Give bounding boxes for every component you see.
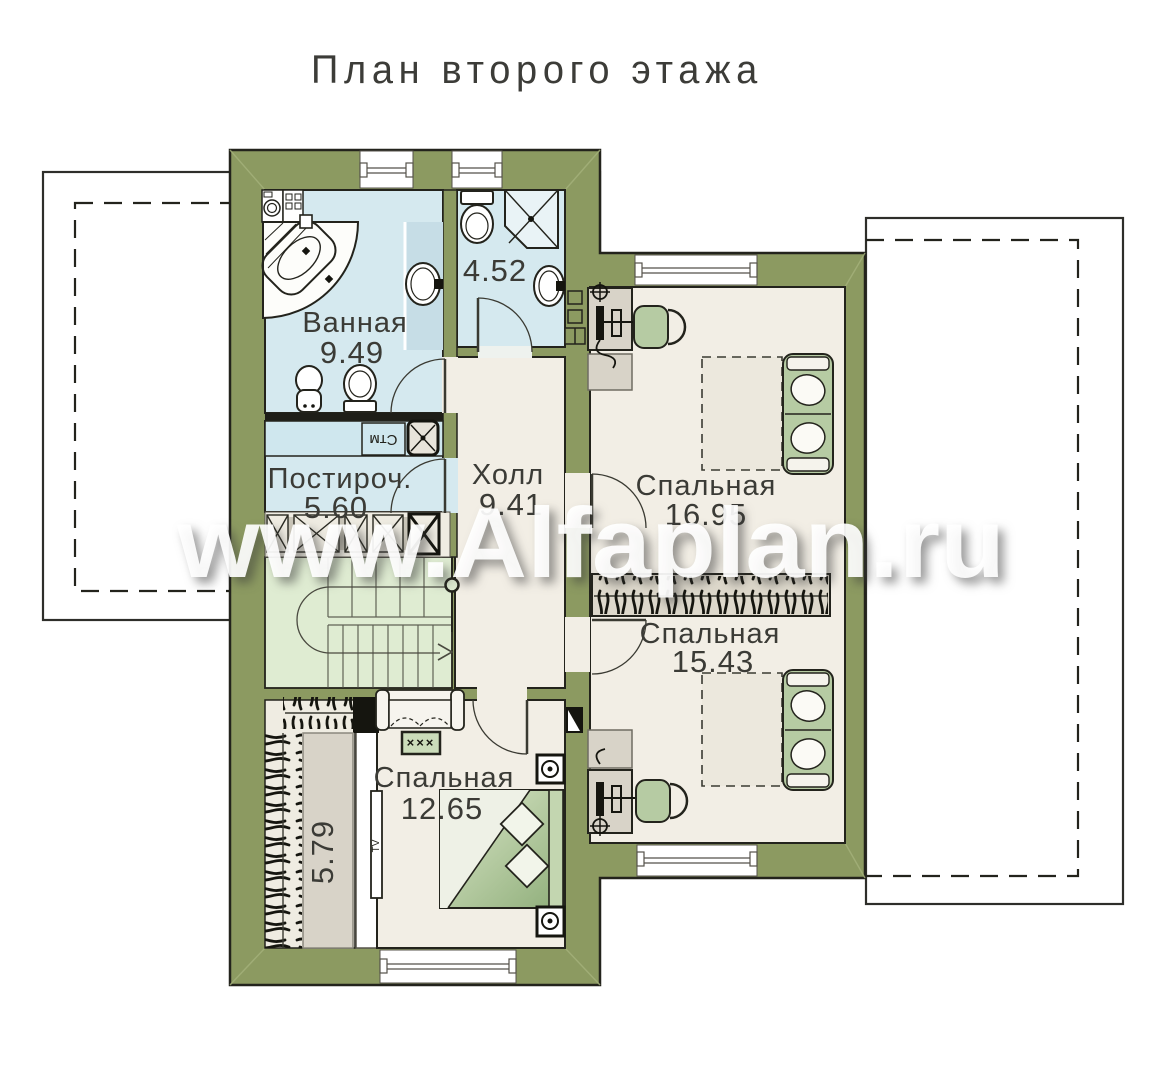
bedroom-bottom-door-opening bbox=[477, 687, 527, 701]
chimney-icon bbox=[566, 707, 583, 733]
watermark: www.Alfaplan.ru bbox=[176, 487, 1005, 598]
room-area: 15.43 bbox=[672, 644, 755, 679]
wc-door-opening bbox=[478, 346, 532, 358]
desk-icon bbox=[588, 770, 632, 833]
sofa-icon bbox=[376, 690, 464, 730]
page-title: План второго этажа bbox=[311, 48, 763, 92]
window bbox=[452, 151, 502, 188]
window bbox=[635, 255, 757, 285]
tv-label: TV bbox=[371, 839, 382, 852]
shower-icon bbox=[505, 190, 558, 248]
speaker-icon bbox=[537, 755, 564, 783]
tv-icon: TV bbox=[371, 791, 382, 898]
laundry-fixtures: Стм bbox=[265, 421, 443, 456]
room-label: Спальная bbox=[374, 762, 515, 794]
speaker-box-icon: ××× bbox=[402, 732, 440, 754]
nightstand-icon bbox=[588, 354, 632, 390]
room-area: 12.65 bbox=[401, 791, 484, 826]
speaker-label: ××× bbox=[407, 735, 436, 750]
floor-plan-drawing: План второго этажа bbox=[0, 0, 1165, 1080]
room-area: 5.79 bbox=[305, 820, 340, 884]
room-area: 4.52 bbox=[463, 253, 527, 288]
room-area: 9.49 bbox=[320, 335, 384, 370]
toilet-icon bbox=[344, 365, 376, 412]
sink-icon bbox=[534, 266, 565, 306]
bidet-icon bbox=[296, 366, 322, 412]
bedroom-right-door-opening bbox=[565, 617, 590, 672]
window bbox=[637, 845, 757, 876]
window bbox=[360, 151, 413, 188]
toilet-icon bbox=[461, 191, 493, 243]
window bbox=[380, 950, 516, 983]
nightstand-icon bbox=[588, 730, 632, 768]
speaker-icon bbox=[537, 907, 564, 936]
floor-plan-page: План второго этажа bbox=[0, 0, 1165, 1080]
washing-machine-label: Стм bbox=[369, 431, 397, 448]
laundry-sink-icon bbox=[408, 421, 438, 455]
vent-shafts-icon bbox=[565, 291, 585, 344]
bed-icon bbox=[702, 670, 833, 790]
bed-icon bbox=[702, 354, 833, 474]
washing-machine-icon bbox=[262, 190, 283, 222]
